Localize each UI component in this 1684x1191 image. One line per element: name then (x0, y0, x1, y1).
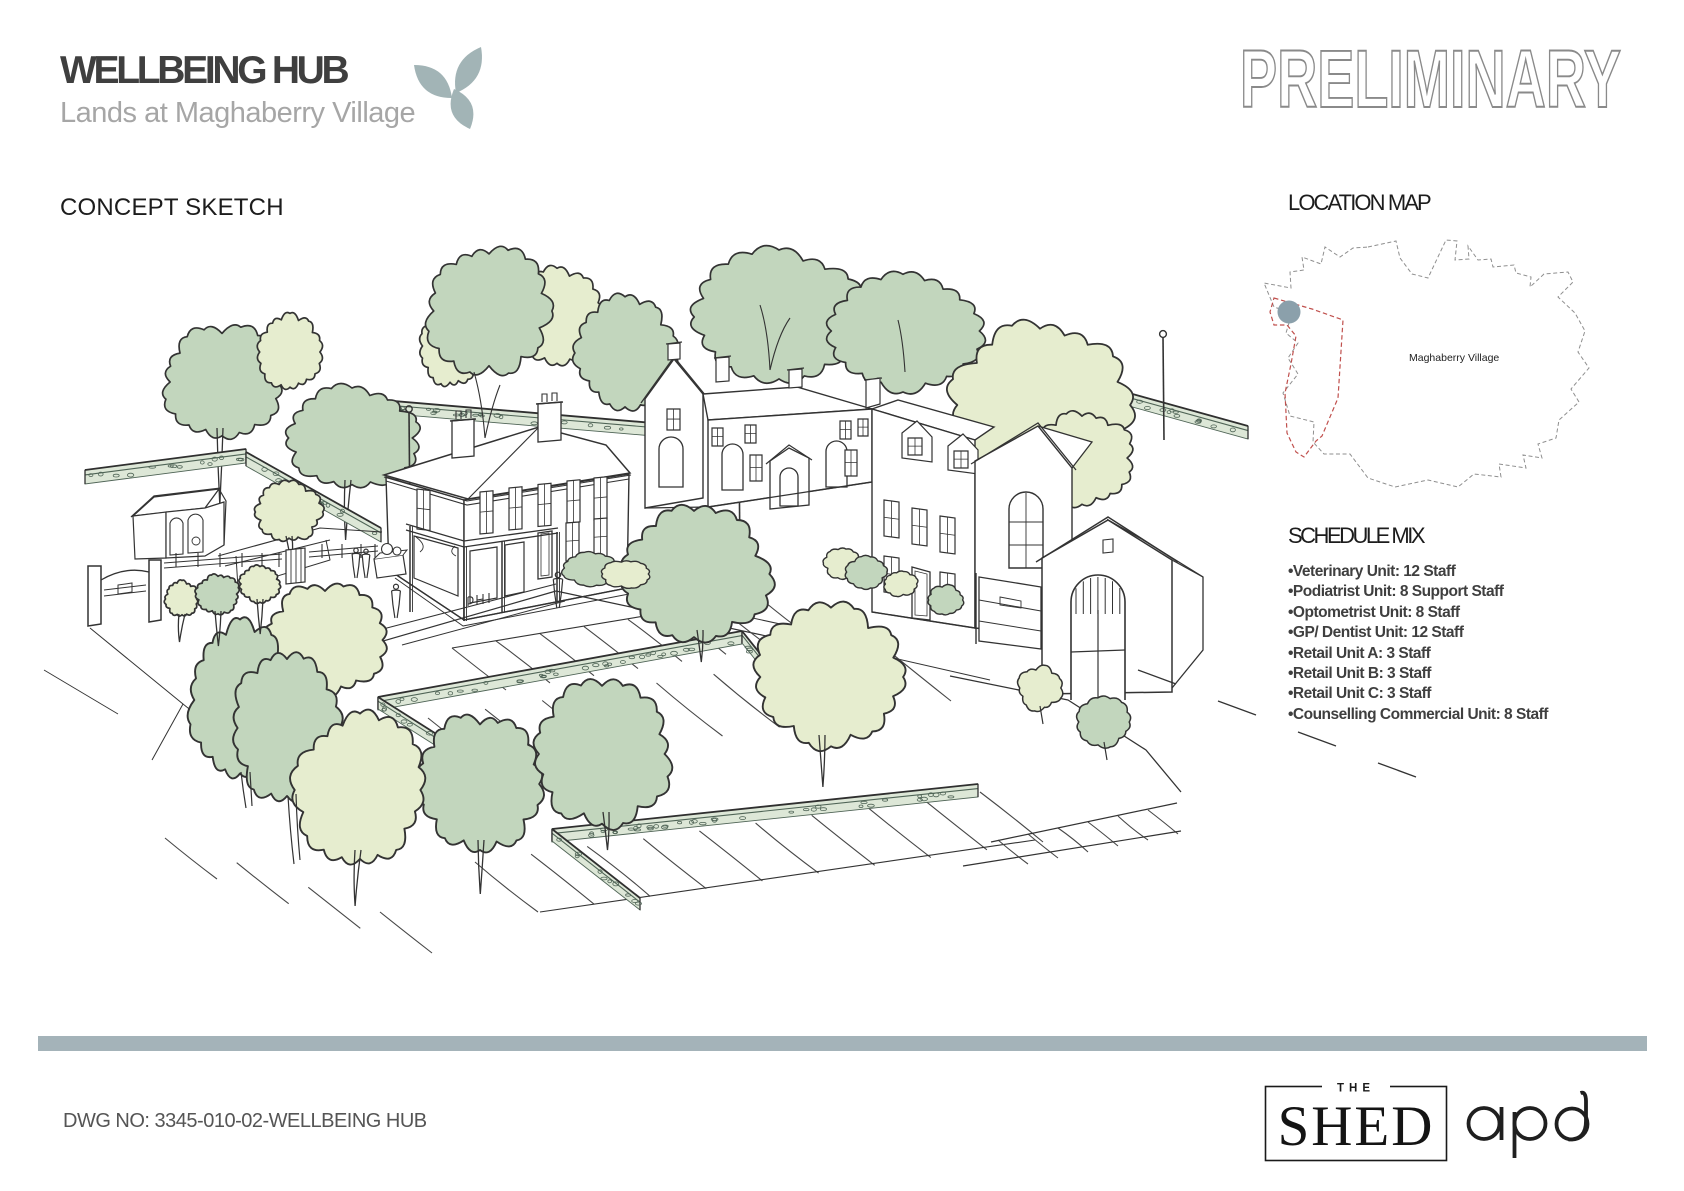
svg-text:SHED: SHED (1278, 1095, 1435, 1158)
svg-text:PRELIMINARY: PRELIMINARY (1240, 34, 1621, 125)
svg-text:Maghaberry Village: Maghaberry Village (1409, 352, 1499, 364)
svg-text:THE: THE (1337, 1083, 1375, 1095)
